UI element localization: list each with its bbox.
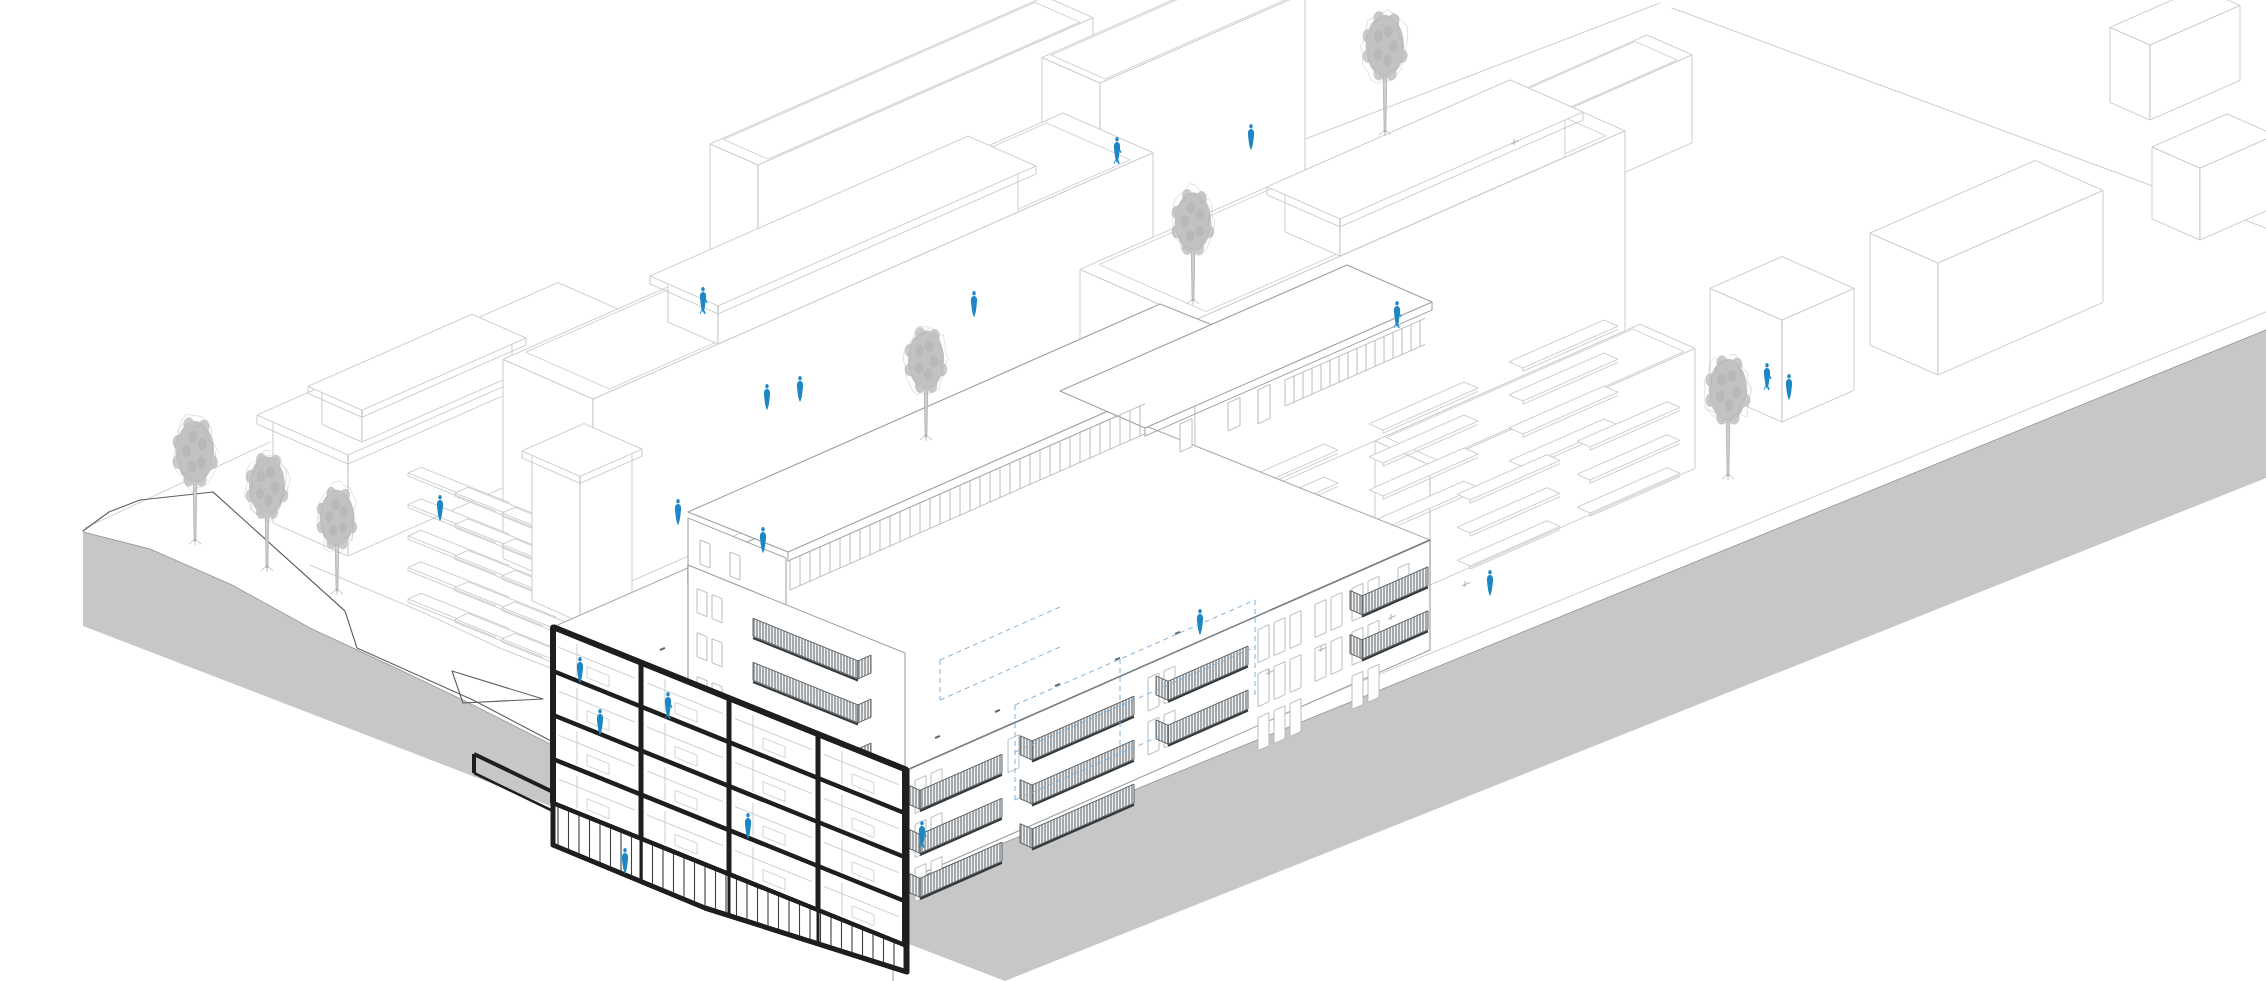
tree-canopy-mottle [1187,202,1196,213]
tree-trunk [265,510,269,568]
massing-building-face [532,451,580,622]
tree-canopy-mottle [916,345,925,356]
wing-window [712,639,722,667]
facade-window [1008,735,1019,773]
tree-canopy-mottle [1727,370,1736,382]
attic-door [1258,384,1270,423]
tree-canopy-mottle [1195,225,1204,236]
tree-canopy-mottle [271,482,280,493]
attic-end-window [700,540,710,568]
facade-window [1352,671,1363,709]
tree-root [331,589,337,594]
facade-window [1258,713,1269,751]
facade-window [1315,600,1326,638]
tree-canopy-mottle [925,341,934,352]
tree-root [261,566,267,571]
tree-canopy-mottle [1374,30,1383,42]
tree-canopy-mottle [1384,26,1393,38]
facade-window [1331,637,1342,675]
attic-end-window [730,552,740,580]
attic-window [1228,398,1240,431]
tree-canopy-mottle [1373,49,1382,61]
tree-root [189,539,195,544]
tree-trunk [335,540,339,591]
tree [1361,9,1408,136]
tree [173,414,219,545]
tree-canopy-mottle [187,460,196,472]
tree-canopy-mottle [266,467,275,478]
tree-canopy [249,457,285,516]
tree-canopy-mottle [331,499,339,510]
tree-canopy-mottle [915,362,924,373]
tree-root [1379,130,1385,135]
tree-canopy-mottle [257,471,266,482]
tree-root [1728,474,1734,479]
tree-canopy-mottle [1717,374,1726,386]
tree-canopy [1709,359,1747,421]
tree-canopy-mottle [1725,399,1734,411]
tree-trunk [193,477,197,541]
facade-window [1258,669,1269,707]
tree-root [1722,474,1728,479]
architectural-axonometric-view [0,0,2266,981]
attic-window [1180,419,1192,452]
facade-window [1258,625,1269,663]
tree-canopy-mottle [264,495,273,506]
tree-canopy-mottle [1186,230,1195,241]
facade-window [1274,662,1285,700]
tree-canopy-mottle [930,356,939,367]
tree-trunk [924,383,928,437]
facade-window [1290,699,1301,737]
tree-canopy-mottle [329,525,337,536]
tree-trunk [1726,415,1730,476]
tree-canopy-mottle [1181,216,1190,227]
tree-canopy-mottle [340,506,348,517]
tree-canopy-mottle [338,522,346,533]
tree-root [337,589,343,594]
tree-canopy-mottle [197,457,206,469]
wing-window [697,633,707,661]
terrain-path-outline [452,671,543,703]
facade-window [1331,593,1342,631]
tree-canopy-mottle [198,438,207,450]
tree-canopy-mottle [1716,391,1725,403]
tree-canopy-mottle [325,511,333,522]
facade-window [1274,706,1285,744]
facade-window [1290,655,1301,693]
axonometric-site-drawing [0,0,2266,981]
tree-canopy-mottle [1732,386,1741,398]
person-figure [1487,570,1493,596]
tree-canopy-mottle [256,488,265,499]
tree-canopy-mottle [189,431,198,443]
facade-window [1368,664,1379,702]
facade-window [1290,611,1301,649]
tree-canopy-mottle [182,445,191,457]
street-furniture-tick [1462,583,1470,587]
wing-window [712,595,722,623]
facade-window [1274,618,1285,656]
tree-canopy-mottle [1389,40,1398,52]
tree-canopy-mottle [1196,209,1205,220]
wing-window [697,589,707,617]
tree-canopy-mottle [1383,55,1392,67]
tree-root [267,566,273,571]
tree-root [195,539,201,544]
tree-canopy-mottle [924,368,933,379]
